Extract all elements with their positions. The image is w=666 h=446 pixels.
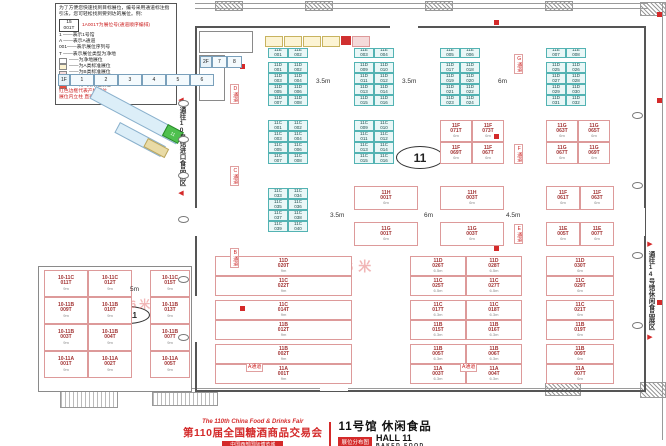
booth-group: 10-11C011T9m10-11C012T9m10-11B009T9m10-1… xyxy=(44,270,132,378)
booth-group: 11D030T6m11C029T6m xyxy=(546,256,614,296)
booth-cell[interactable]: 11D017 xyxy=(440,62,460,73)
booth-cell[interactable]: 11D026 xyxy=(566,62,586,73)
booth-cell[interactable]: 11D021 xyxy=(440,84,460,95)
booth-cell[interactable]: 11E005T6m xyxy=(546,222,580,246)
aisle-label: B通道 xyxy=(230,248,239,268)
booth-cell[interactable]: 11D024 xyxy=(460,95,480,106)
booth-cell[interactable]: 11E007T6m xyxy=(580,222,614,246)
legend-swatch-color xyxy=(59,64,67,70)
door-gap xyxy=(193,296,198,342)
bottom-stairs xyxy=(60,390,118,408)
door-gap xyxy=(320,386,348,391)
booth-cell[interactable]: 11C004 xyxy=(288,131,308,142)
column-marker xyxy=(178,100,189,107)
booth-cell[interactable]: 10-11B003T9m xyxy=(44,324,88,351)
booth-group: 11C00111C00211C00311C00411C00511C00611C0… xyxy=(268,120,308,164)
booth-cell[interactable]: 11B015T6.3m xyxy=(410,320,466,340)
booth-cell[interactable]: 11E008 xyxy=(566,48,586,58)
hall-title: 11号馆 休闲食品 展位分布图 HALL 11 BAKED FOOD xyxy=(338,418,431,446)
booth-cell[interactable]: 11D003 xyxy=(268,73,288,84)
booth-cell[interactable]: 10-11B013T9m xyxy=(150,297,190,324)
booth-cell[interactable]: 11C025T6.5m xyxy=(410,276,466,296)
booth-cell[interactable]: 11D002 xyxy=(288,62,308,73)
booth-cell[interactable]: 11B016T6.3m xyxy=(466,320,522,340)
booth-cell[interactable]: 11C007 xyxy=(268,153,288,164)
booth-cell[interactable]: 11D031 xyxy=(546,95,566,106)
booth-cell[interactable]: 11C016 xyxy=(374,153,394,164)
column-marker xyxy=(632,252,643,259)
booth-cell[interactable]: 11D032 xyxy=(566,95,586,106)
booth-cell[interactable]: 11B019T6m xyxy=(546,320,614,340)
column-marker xyxy=(632,322,643,329)
booth-group: 11E00111E002 xyxy=(268,48,308,58)
booth-group: 10-11C015T9m10-11B013T9m10-11B007T9m10-1… xyxy=(150,270,190,378)
fair-title: The 110th China Food & Drinks Fair 第110届… xyxy=(183,419,322,446)
corridor-right-label: 通往14号馆休闲食品展区 xyxy=(645,251,655,330)
booth-cell[interactable]: 11G001T6m xyxy=(354,222,418,246)
booth-group: 11C021T6m11B019T6m xyxy=(546,300,614,340)
minimap-hall-cell[interactable]: 6 xyxy=(190,74,214,86)
column-marker xyxy=(178,216,189,223)
booth-cell[interactable]: 11C012 xyxy=(374,131,394,142)
right-outer-wall xyxy=(662,2,663,440)
minimap-hall-cell[interactable]: 4 xyxy=(142,74,166,86)
booth-cell[interactable]: 11C015 xyxy=(354,153,374,164)
booth-cell[interactable]: 11D008 xyxy=(288,95,308,106)
booth-group: 11D00911D01011D01111D01211D01311D01411D0… xyxy=(354,62,394,106)
top-stairs-hatch xyxy=(425,1,453,11)
booth-cell[interactable]: 11F063T6m xyxy=(580,186,614,210)
bottom-stairs-2 xyxy=(152,392,218,406)
booth-group: 11D02511D02611D02711D02811D02911D03011D0… xyxy=(546,62,586,106)
booth-group: 11H003T6m xyxy=(440,186,504,210)
booth-cell[interactable]: 11H001T6m xyxy=(354,186,418,210)
booth-group: 11G003T6m xyxy=(440,222,504,246)
booth-cell[interactable]: 11F073T6m xyxy=(472,120,504,142)
column-marker xyxy=(632,182,643,189)
info-point[interactable] xyxy=(341,36,351,45)
title-divider xyxy=(329,422,331,446)
booth-group: 11D01711D01811D01911D02011D02111D02211D0… xyxy=(440,62,480,106)
top-stairs-hatch xyxy=(545,1,573,11)
booth-cell[interactable]: 11B012T9m xyxy=(215,320,352,340)
booth-cell[interactable]: 11A001T9m xyxy=(215,364,352,384)
booth-cell[interactable]: 11D016 xyxy=(374,95,394,106)
booth-group: 11E005T6m11E007T6m xyxy=(546,222,614,246)
booth-cell[interactable]: 11C022T9m xyxy=(215,276,352,296)
right-arrow-icon: ▶ xyxy=(647,240,652,248)
minimap-hall-cell[interactable]: 7 xyxy=(212,56,227,68)
feature-booth[interactable] xyxy=(265,36,283,47)
fire-hydrant-icon xyxy=(494,20,499,25)
booth-cell[interactable]: 11D028 xyxy=(566,73,586,84)
booth-group: 11B009T6m11A007T6m xyxy=(546,344,614,384)
booth-cell[interactable]: 10-11A001T9m xyxy=(44,351,88,378)
booth-cell[interactable]: 11E001 xyxy=(268,48,288,58)
column-marker xyxy=(178,334,189,341)
booth-cell[interactable]: 11G069T6m xyxy=(578,142,610,164)
booth-cell[interactable]: 11D020 xyxy=(460,73,480,84)
aisle-label: D通道 xyxy=(230,84,239,104)
booth-cell[interactable]: 11B002T9m xyxy=(215,344,352,364)
booth-cell[interactable]: 11D006 xyxy=(288,84,308,95)
minimap-hall-cell[interactable]: 2 xyxy=(94,74,118,86)
booth-cell[interactable]: 11C011 xyxy=(354,131,374,142)
title-block: The 110th China Food & Drinks Fair 第110届… xyxy=(183,418,432,446)
booth-cell[interactable]: 11C010 xyxy=(374,120,394,131)
fire-hydrant-icon xyxy=(240,306,245,311)
dimension-label: 6m xyxy=(498,78,507,85)
column-marker xyxy=(178,172,189,179)
booth-cell[interactable]: 11D018 xyxy=(460,62,480,73)
legend-example-note: 1A001T为展位号(通道顺序编排) xyxy=(82,23,150,29)
booth-cell[interactable]: 11C003 xyxy=(268,131,288,142)
booth-cell[interactable]: 11C006 xyxy=(288,142,308,153)
booth-cell[interactable]: 11C027T6.5m xyxy=(466,276,522,296)
aisle-label: G通道 xyxy=(514,54,523,74)
legend-box: 为了方便您快速找到目标展位，编号采用通道标注指引法，您可轻松找到要到达的展位。例… xyxy=(55,3,177,105)
aisle-label: F通道 xyxy=(514,144,523,164)
booth-group: 11G063T6m11G065T6m11G067T6m11G069T6m xyxy=(546,120,610,164)
booth-cell[interactable]: 11E002 xyxy=(288,48,308,58)
booth-cell[interactable]: 10-11C011T9m xyxy=(44,270,88,297)
booth-cell[interactable]: 11D026T6.5m xyxy=(410,256,466,276)
fair-venue: 中国西部国际博览城 xyxy=(222,441,283,446)
booth-cell[interactable]: 11E004 xyxy=(374,48,394,58)
booth-cell[interactable]: 11C002 xyxy=(288,120,308,131)
booth-group: 11F071T6m11F073T6m11F069T6m11F067T6m xyxy=(440,120,504,164)
booth-cell[interactable]: 11F067T6m xyxy=(472,142,504,164)
booth-group: 11D026T6.5m11D028T6.5m11C025T6.5m11C027T… xyxy=(410,256,522,296)
booth-cell[interactable]: 11D005 xyxy=(268,84,288,95)
minimap-floor-row: 2F78 xyxy=(200,56,242,68)
top-wall-line-2 xyxy=(195,8,648,9)
minimap-hall-cell[interactable]: 5 xyxy=(166,74,190,86)
booth-cell[interactable]: 10-11C015T9m xyxy=(150,270,190,297)
booth-cell[interactable]: 11D030T6m xyxy=(546,256,614,276)
hall-number-oval: 11 xyxy=(396,146,444,169)
booth-cell[interactable]: 11E005 xyxy=(440,48,460,58)
legend-example-booth: 15 001T xyxy=(59,19,79,32)
booth-cell[interactable]: 11E003 xyxy=(354,48,374,58)
legend-intro: 为了方便您快速找到目标展位，编号采用通道标注指引法，您可轻松找到要到达的展位。例… xyxy=(59,6,173,18)
minimap-floor-label: 2F xyxy=(200,56,212,68)
booth-cell[interactable]: 11G067T6m xyxy=(546,142,578,164)
feature-booth[interactable] xyxy=(352,36,370,47)
booth-cell[interactable]: 11D022 xyxy=(460,84,480,95)
booth-group: 11B002T9m11A001T9m xyxy=(215,344,352,384)
service-room xyxy=(199,31,253,53)
booth-group: 11F061T6m11F063T6m xyxy=(546,186,614,210)
booth-group: 11E00311E004 xyxy=(354,48,394,58)
minimap-hall-cell[interactable]: 1 xyxy=(70,74,94,86)
minimap-floor-row: 1F123456 xyxy=(58,74,214,86)
booth-cell[interactable]: 11D004 xyxy=(288,73,308,84)
aisle-label: A通道 xyxy=(246,363,263,372)
top-feature-booths xyxy=(265,36,370,47)
booth-cell[interactable]: 11C001 xyxy=(268,120,288,131)
door-gap xyxy=(193,208,198,236)
dimension-label: 6m xyxy=(424,212,433,219)
booth-cell[interactable]: 11C039 xyxy=(268,221,288,232)
booth-cell[interactable]: 11B006T6.3m xyxy=(466,344,522,364)
booth-cell[interactable]: 11D012 xyxy=(374,73,394,84)
feature-booth[interactable] xyxy=(322,36,340,47)
booth-cell[interactable]: 11A003T6.3m xyxy=(410,364,466,384)
corridor-to-hall10: ◀ 通往10号馆进口食品展区 ◀ xyxy=(176,96,186,197)
fire-hydrant-icon xyxy=(657,98,662,103)
booth-group: 11C03311C03411C03511C03611C03711C03811C0… xyxy=(268,188,308,232)
right-arrow-icon: ▶ xyxy=(647,333,652,341)
booth-cell[interactable]: 11C013 xyxy=(354,142,374,153)
legend-example-code: 001T xyxy=(60,26,78,31)
hall-title-cn: 11号馆 休闲食品 xyxy=(338,418,431,434)
minimap-hall-cell[interactable]: 3 xyxy=(118,74,142,86)
booth-cell[interactable]: 11F069T6m xyxy=(440,142,472,164)
booth-cell[interactable]: 11C021T6m xyxy=(546,300,614,320)
booth-cell[interactable]: 11F061T6m xyxy=(546,186,580,210)
dimension-label: 3.5m xyxy=(330,212,344,219)
left-arrow-icon: ◀ xyxy=(178,189,183,197)
fire-hydrant-icon xyxy=(494,246,499,251)
minimap-hall-cell[interactable]: 8 xyxy=(227,56,242,68)
booth-cell[interactable]: 10-11C012T9m xyxy=(88,270,132,297)
booth-cell[interactable]: 10-11A005T9m xyxy=(150,351,190,378)
booth-cell[interactable]: 11A007T6m xyxy=(546,364,614,384)
legend-swatch-color xyxy=(59,58,67,64)
aisle-label: A通道 xyxy=(460,363,477,372)
booth-cell[interactable]: 11D025 xyxy=(546,62,566,73)
booth-cell[interactable]: 11G063T6m xyxy=(546,120,578,142)
booth-cell[interactable]: 11D011 xyxy=(354,73,374,84)
door-gap xyxy=(390,24,418,29)
booth-cell[interactable]: 11D015 xyxy=(354,95,374,106)
booth-group: 11E00511E006 xyxy=(440,48,480,58)
booth-cell[interactable]: 11C033 xyxy=(268,188,288,199)
booth-cell[interactable]: 11C005 xyxy=(268,142,288,153)
booth-cell[interactable]: 11C017T6.3m xyxy=(410,300,466,320)
top-wall-line xyxy=(195,3,648,4)
booth-cell[interactable]: 11D007 xyxy=(268,95,288,106)
booth-cell[interactable]: 11C029T6m xyxy=(546,276,614,296)
booth-group: 11C014T9m11B012T9m xyxy=(215,300,352,340)
booth-cell[interactable]: 11D013 xyxy=(354,84,374,95)
booth-group: 11D00111D00211D00311D00411D00511D00611D0… xyxy=(268,62,308,106)
top-stairs-hatch xyxy=(215,1,243,11)
fair-title-cn: 第110届全国糖酒商品交易会 xyxy=(183,425,322,440)
booth-cell[interactable]: 11D027 xyxy=(546,73,566,84)
aisle-label: E通道 xyxy=(514,224,523,244)
dimension-label: 5m xyxy=(130,286,139,293)
column-marker xyxy=(632,112,643,119)
booth-group: 11C00911C01011C01111C01211C01311C01411C0… xyxy=(354,120,394,164)
dimension-label: 3.5m xyxy=(316,78,330,85)
booth-cell[interactable]: 11D009 xyxy=(354,62,374,73)
plan-badge: 展位分布图 xyxy=(338,437,372,446)
floor-plan-page: 为了方便您快速找到目标展位，编号采用通道标注指引法，您可轻松找到要到达的展位。例… xyxy=(0,0,666,446)
dimension-label: 4.5m xyxy=(506,212,520,219)
booth-cell[interactable]: 11C035 xyxy=(268,199,288,210)
feature-booth[interactable] xyxy=(284,36,302,47)
booth-cell[interactable]: 11C034 xyxy=(288,188,308,199)
dimension-label: 3.5m xyxy=(402,78,416,85)
minimap-floor-label: 1F xyxy=(58,74,70,86)
booth-cell[interactable]: 11C038 xyxy=(288,210,308,221)
booth-cell[interactable]: 11C018T6.3m xyxy=(466,300,522,320)
column-marker xyxy=(178,276,189,283)
booth-cell[interactable]: 11D023 xyxy=(440,95,460,106)
booth-cell[interactable]: 11F071T6m xyxy=(440,120,472,142)
door-gap xyxy=(640,208,645,236)
booth-cell[interactable]: 11C036 xyxy=(288,199,308,210)
booth-cell[interactable]: 11C014T9m xyxy=(215,300,352,320)
booth-group: 11H001T6m xyxy=(354,186,418,210)
booth-group: 11C017T6.3m11C018T6.3m11B015T6.3m11B016T… xyxy=(410,300,522,340)
booth-cell[interactable]: 11D030 xyxy=(566,84,586,95)
fire-hydrant-icon xyxy=(657,300,662,305)
booth-cell[interactable]: 11H003T6m xyxy=(440,186,504,210)
booth-cell[interactable]: 11D010 xyxy=(374,62,394,73)
booth-group: 11E00711E008 xyxy=(546,48,586,58)
corridor-to-hall14: ▶ 通往14号馆休闲食品展区 ▶ xyxy=(645,240,655,341)
feature-booth[interactable] xyxy=(303,36,321,47)
booth-cell[interactable]: 11C040 xyxy=(288,221,308,232)
booth-cell[interactable]: 10-11B010T9m xyxy=(88,297,132,324)
booth-cell[interactable]: 11D019 xyxy=(440,73,460,84)
top-stairs-hatch xyxy=(305,1,333,11)
booth-cell[interactable]: 11B005T6.3m xyxy=(410,344,466,364)
booth-cell[interactable]: 11C008 xyxy=(288,153,308,164)
fire-hydrant-icon xyxy=(657,12,662,17)
booth-cell[interactable]: 11D014 xyxy=(374,84,394,95)
booth-cell[interactable]: 11E007 xyxy=(546,48,566,58)
booth-cell[interactable]: 11C009 xyxy=(354,120,374,131)
booth-cell[interactable]: 11G003T6m xyxy=(440,222,504,246)
booth-cell[interactable]: 11D029 xyxy=(546,84,566,95)
booth-cell[interactable]: 11E006 xyxy=(460,48,480,58)
hall-number: 11 xyxy=(414,151,427,165)
legend-definitions: 1 ——表示1号馆A ——表示A通道001——表示展位序列号T ——表示展位类型… xyxy=(59,33,173,58)
aisle-label: C通道 xyxy=(230,166,239,186)
booth-cell[interactable]: 10-11B009T9m xyxy=(44,297,88,324)
booth-cell[interactable]: 11D001 xyxy=(268,62,288,73)
booth-cell[interactable]: 11C037 xyxy=(268,210,288,221)
booth-group: 11G001T6m xyxy=(354,222,418,246)
booth-cell[interactable]: 11C014 xyxy=(374,142,394,153)
fire-hydrant-icon xyxy=(494,134,499,139)
booth-cell[interactable]: 11G065T6m xyxy=(578,120,610,142)
booth-cell[interactable]: 10-11B004T9m xyxy=(88,324,132,351)
booth-cell[interactable]: 11B009T6m xyxy=(546,344,614,364)
column-marker xyxy=(178,136,189,143)
booth-cell[interactable]: 11D028T6.5m xyxy=(466,256,522,276)
booth-cell[interactable]: 10-11A002T9m xyxy=(88,351,132,378)
hall-title-en: HALL 11 xyxy=(376,434,425,443)
